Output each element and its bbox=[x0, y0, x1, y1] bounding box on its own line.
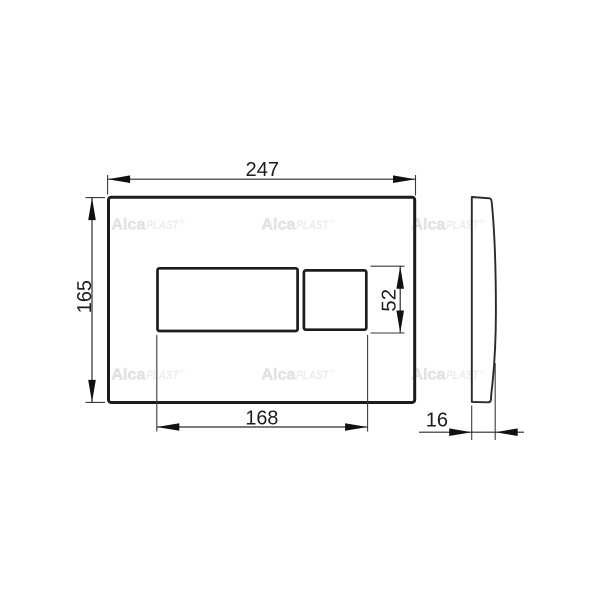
svg-text:Alca: Alca bbox=[111, 367, 146, 384]
svg-text:165: 165 bbox=[74, 280, 96, 313]
svg-text:52: 52 bbox=[378, 289, 400, 312]
svg-text:®: ® bbox=[330, 368, 335, 376]
svg-text:247: 247 bbox=[246, 159, 280, 181]
svg-text:®: ® bbox=[330, 218, 335, 226]
svg-text:Alca: Alca bbox=[261, 367, 296, 384]
svg-text:Alca: Alca bbox=[261, 217, 296, 234]
svg-text:PLAST: PLAST bbox=[446, 218, 480, 232]
svg-text:PLAST: PLAST bbox=[146, 218, 180, 232]
svg-text:®: ® bbox=[180, 218, 185, 226]
svg-text:®: ® bbox=[480, 218, 485, 226]
svg-text:Alca: Alca bbox=[111, 217, 146, 234]
svg-text:16: 16 bbox=[426, 410, 448, 432]
svg-text:PLAST: PLAST bbox=[296, 368, 330, 382]
svg-text:PLAST: PLAST bbox=[146, 368, 180, 382]
svg-text:®: ® bbox=[180, 368, 185, 376]
svg-text:Alca: Alca bbox=[411, 217, 446, 234]
svg-text:Alca: Alca bbox=[411, 367, 446, 384]
svg-text:PLAST: PLAST bbox=[296, 218, 330, 232]
svg-text:PLAST: PLAST bbox=[446, 368, 480, 382]
svg-text:®: ® bbox=[480, 368, 485, 376]
svg-text:168: 168 bbox=[245, 407, 278, 429]
